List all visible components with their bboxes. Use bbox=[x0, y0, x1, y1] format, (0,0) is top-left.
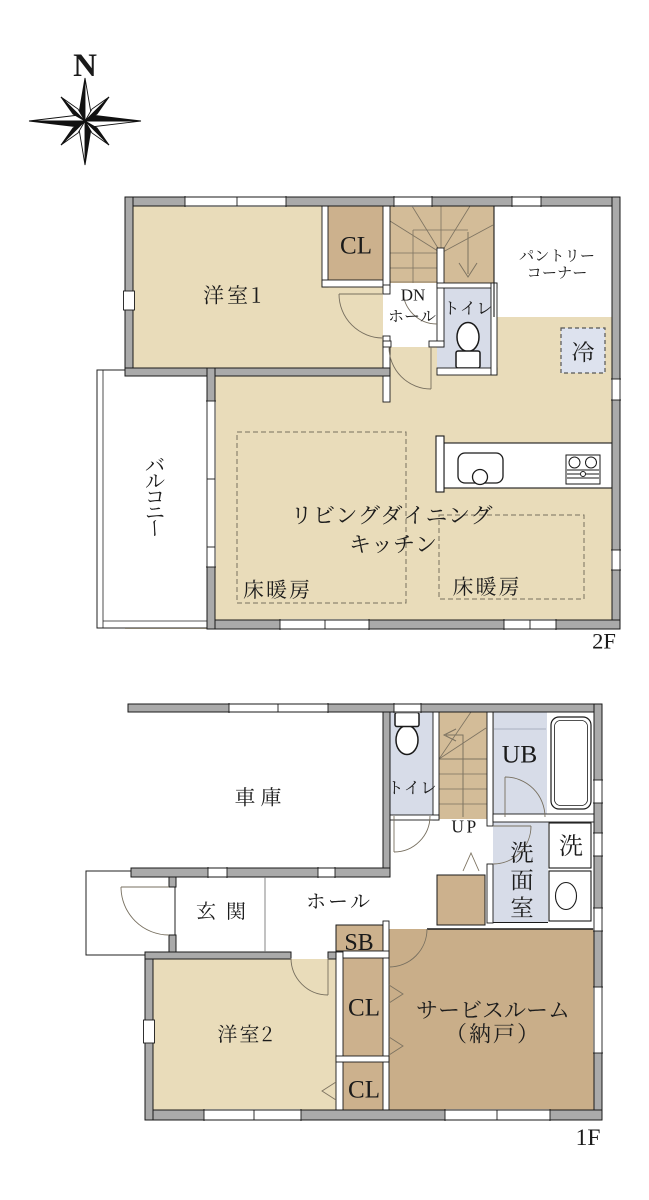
svg-text:UP: UP bbox=[451, 817, 478, 837]
svg-text:UB: UB bbox=[502, 740, 537, 769]
svg-text:2F: 2F bbox=[592, 629, 616, 654]
svg-text:DN: DN bbox=[401, 286, 426, 305]
svg-text:1F: 1F bbox=[576, 1125, 601, 1151]
svg-text:CL: CL bbox=[348, 1077, 380, 1104]
svg-text:CL: CL bbox=[348, 995, 380, 1022]
svg-text:CL: CL bbox=[340, 233, 372, 260]
svg-text:SB: SB bbox=[344, 930, 373, 956]
